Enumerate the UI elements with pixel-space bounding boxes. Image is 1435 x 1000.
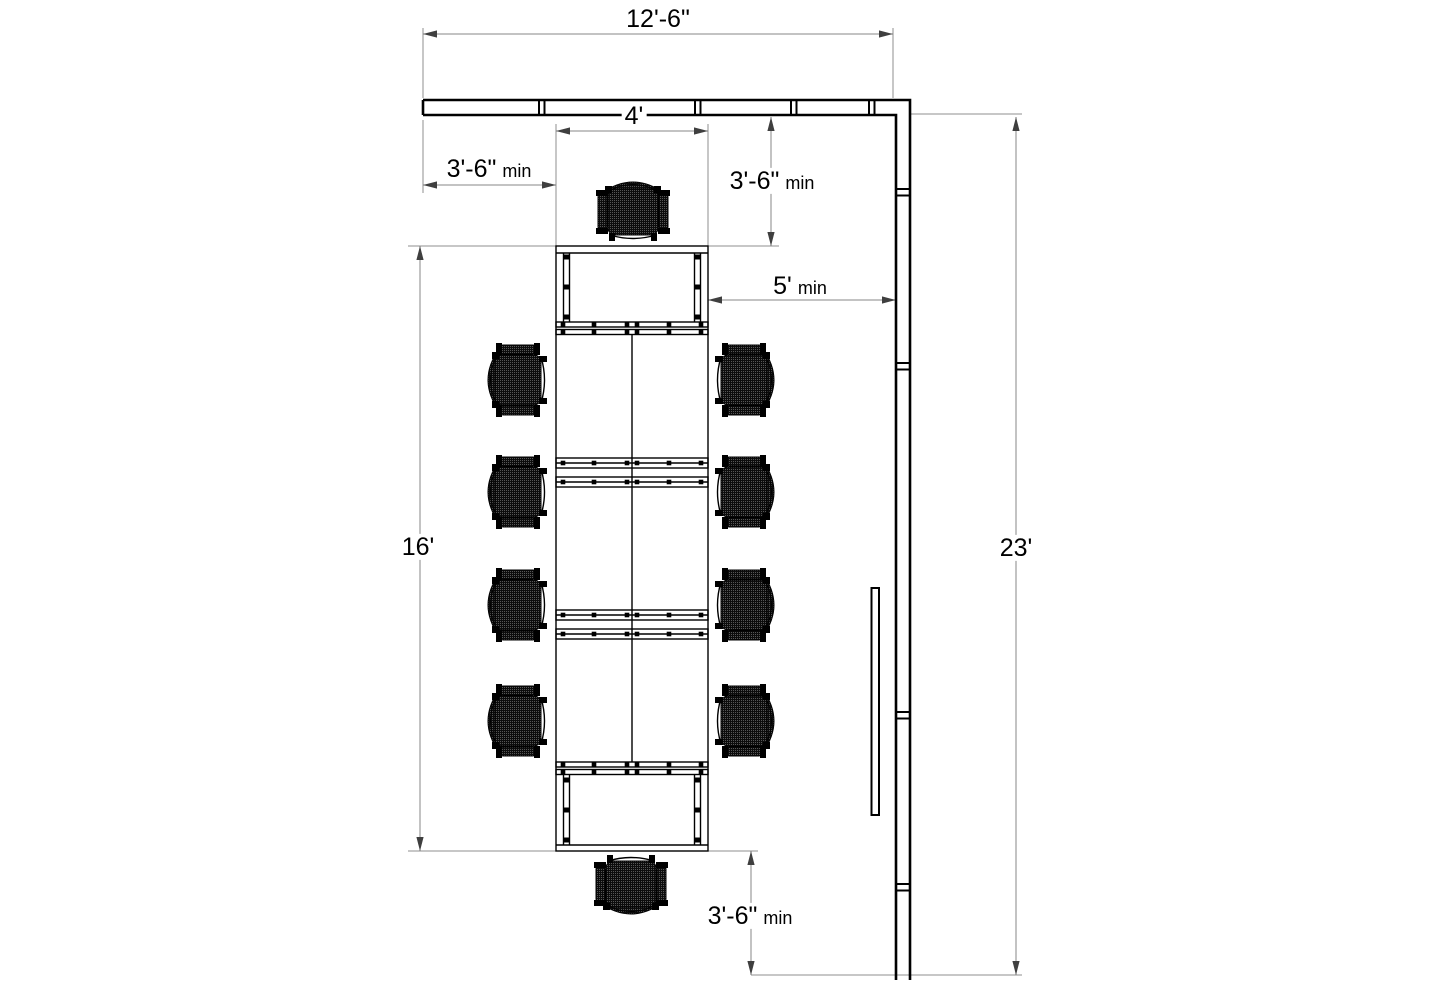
chair [715,343,774,417]
wall-joints [896,189,910,891]
chairs [488,182,774,914]
dim-label-side-aisle: 5'min [770,273,830,299]
chair [488,455,547,529]
chair [488,343,547,417]
dim-label-bottom-clearance: 3'-6"min [705,903,796,929]
dim-label-right-clearance: 3'-6"min [727,168,818,194]
dim-label-room-depth: 23' [997,535,1036,561]
chair [715,455,774,529]
floor-plan-drawing [0,0,1435,1000]
floor-plan: 12'-6" 4' 3'-6"min 3'-6"min 5'min 16' 23… [0,0,1435,1000]
chair [715,684,774,758]
conference-table [556,246,708,851]
chair [488,684,547,758]
dim-label-table-length: 16' [399,534,438,560]
chair [715,568,774,642]
dim-label-table-width: 4' [622,103,647,129]
door-panel [872,588,880,815]
window-mullions [539,100,875,115]
chair [596,182,670,241]
chair [594,855,668,914]
chair [488,568,547,642]
dim-label-left-clearance: 3'-6"min [444,156,535,182]
dim-label-wall-width: 12'-6" [623,6,693,32]
